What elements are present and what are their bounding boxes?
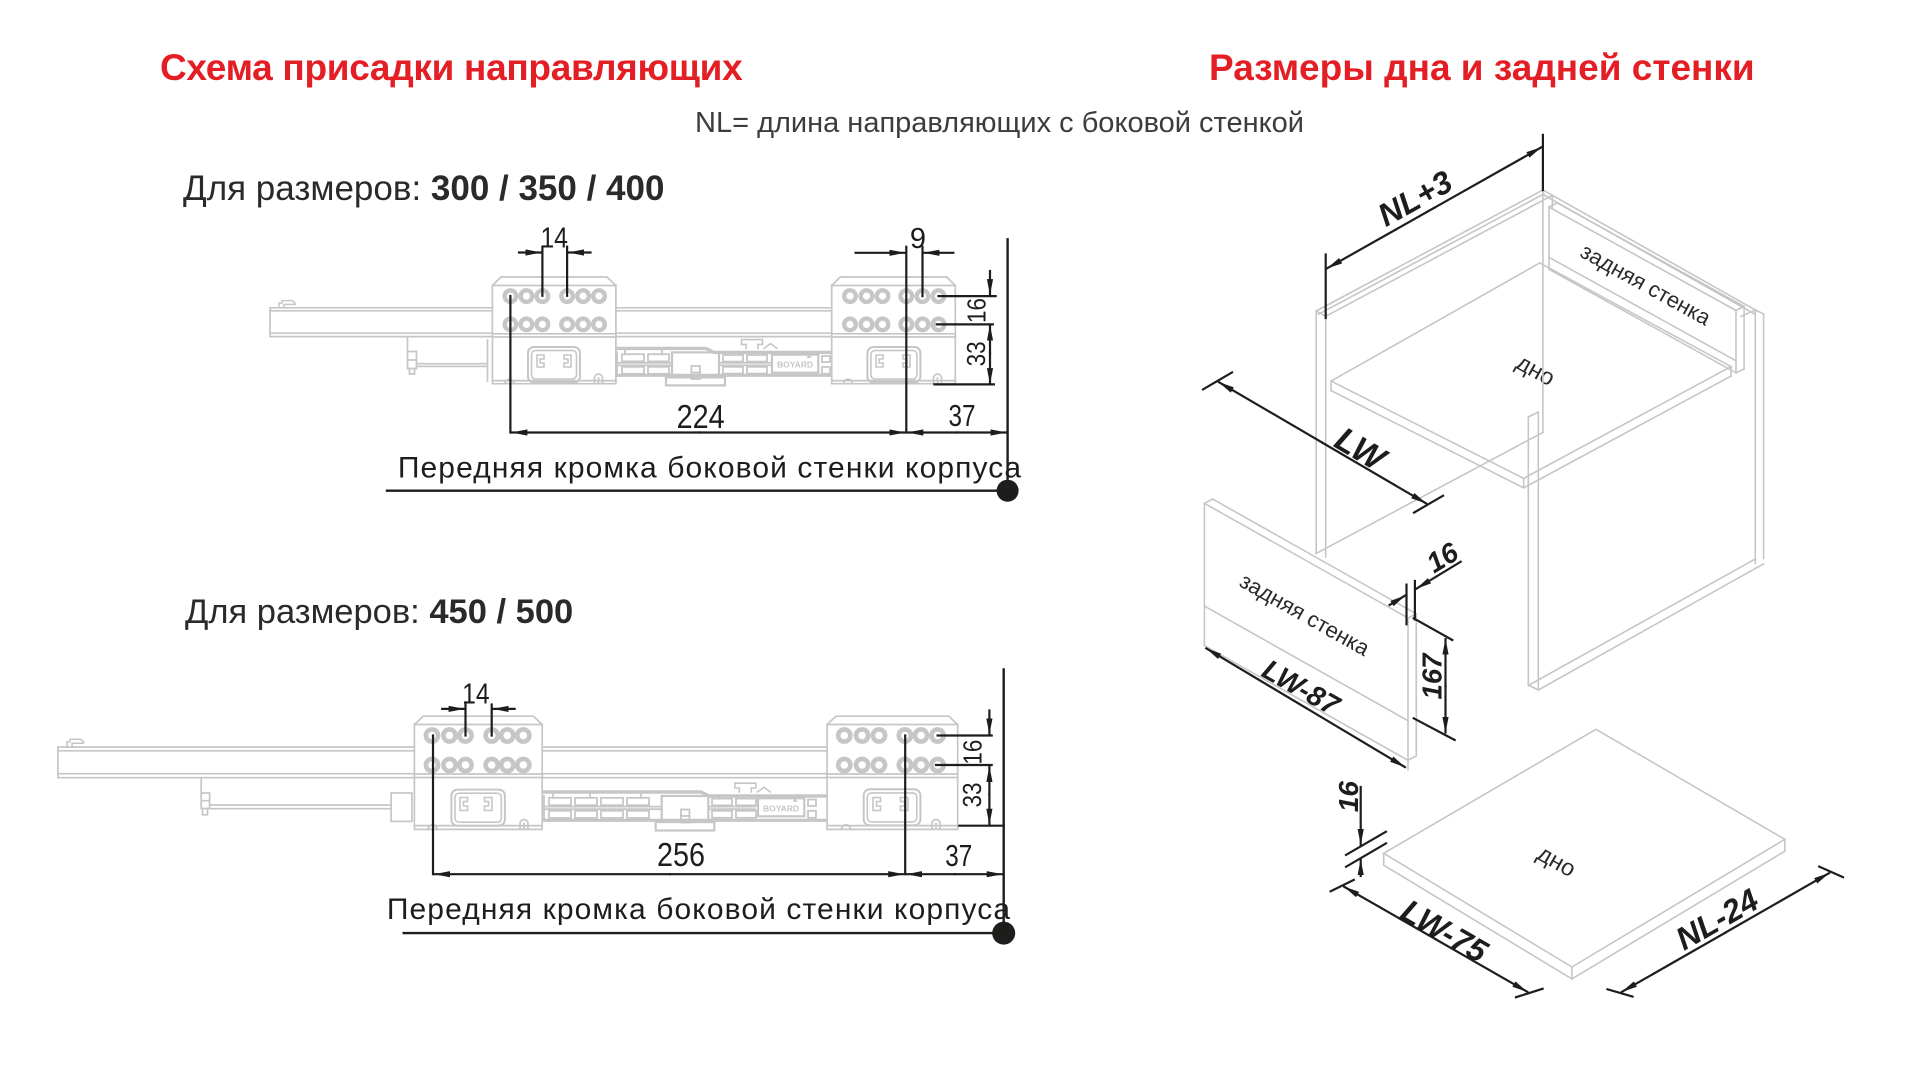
svg-text:33: 33 <box>961 341 991 366</box>
svg-text:Для размеров: 450 / 500: Для размеров: 450 / 500 <box>185 593 573 631</box>
svg-text:16: 16 <box>1421 536 1464 579</box>
svg-text:14: 14 <box>540 223 568 255</box>
svg-text:Передняя кромка боковой стенки: Передняя кромка боковой стенки корпуса <box>398 452 1022 485</box>
svg-text:дно: дно <box>1533 840 1580 882</box>
svg-text:NL= длина направляющих с боков: NL= длина направляющих с боковой стенкой <box>695 107 1304 139</box>
svg-text:14: 14 <box>462 679 490 711</box>
svg-text:16: 16 <box>1333 781 1364 813</box>
svg-text:Для размеров: 300 / 350 / 400: Для размеров: 300 / 350 / 400 <box>183 169 664 208</box>
svg-text:167: 167 <box>1417 652 1448 700</box>
svg-text:NL-24: NL-24 <box>1670 881 1765 957</box>
svg-text:BOYARD: BOYARD <box>763 803 799 813</box>
svg-text:37: 37 <box>949 398 976 433</box>
svg-text:16: 16 <box>958 740 988 765</box>
svg-text:задняя стенка: задняя стенка <box>1236 568 1375 661</box>
svg-text:BOYARD: BOYARD <box>777 360 813 370</box>
svg-text:9: 9 <box>910 223 926 255</box>
svg-text:LW-87: LW-87 <box>1257 654 1346 723</box>
svg-text:Схема присадки направляющих: Схема присадки направляющих <box>160 47 743 88</box>
svg-text:37: 37 <box>945 838 972 873</box>
svg-text:Передняя кромка боковой стенки: Передняя кромка боковой стенки корпуса <box>387 893 1011 926</box>
svg-text:Размеры дна и задней стенки: Размеры дна и задней стенки <box>1209 47 1755 88</box>
svg-text:LW: LW <box>1328 420 1394 480</box>
svg-text:256: 256 <box>657 836 705 873</box>
svg-text:дно: дно <box>1512 349 1559 391</box>
svg-text:LW-75: LW-75 <box>1395 892 1495 970</box>
svg-text:33: 33 <box>957 783 987 808</box>
svg-text:224: 224 <box>677 398 725 435</box>
svg-text:16: 16 <box>961 298 991 323</box>
svg-text:NL+3: NL+3 <box>1372 163 1459 233</box>
